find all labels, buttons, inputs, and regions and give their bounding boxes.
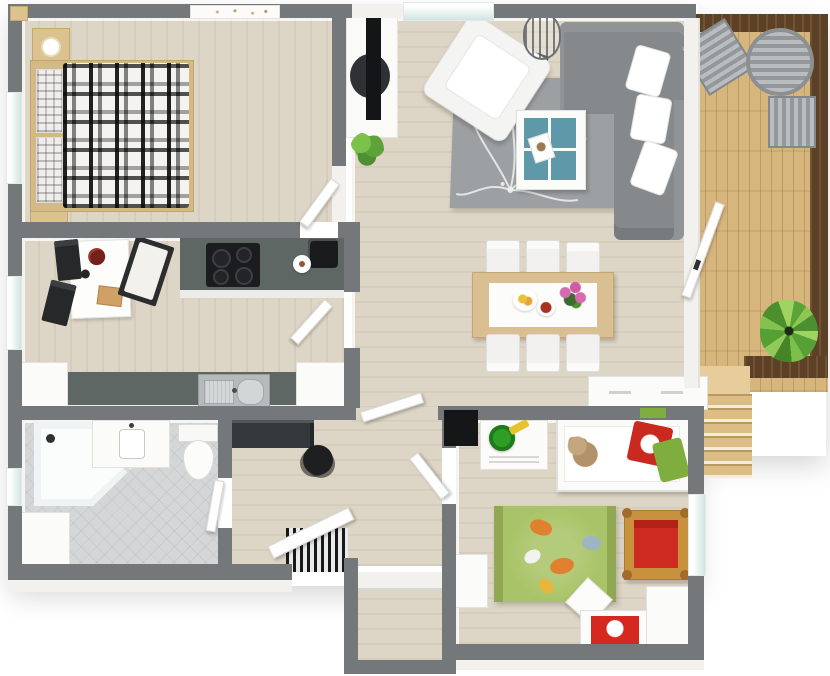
toy-shovel (508, 419, 529, 435)
dining-table (472, 272, 614, 338)
chalkboard-panel (444, 410, 478, 446)
living-window (403, 2, 494, 21)
stair-step (696, 422, 752, 436)
kids-dresser (480, 420, 548, 470)
bathroom-cabinet (16, 512, 70, 568)
dining-chair (526, 334, 560, 372)
deck-chair (768, 96, 816, 148)
wall-closet-right (442, 558, 456, 674)
sink-bowl (237, 379, 264, 405)
building-base-kids (456, 660, 704, 670)
crib-mattress (634, 520, 678, 568)
double-bed (30, 60, 194, 212)
food-bowl (537, 299, 555, 316)
plate (293, 255, 311, 273)
glass-wall-deck (684, 18, 700, 388)
rug-animal-bird (581, 534, 602, 552)
vanity (92, 420, 170, 468)
burner (235, 267, 253, 285)
kitchen-sink (198, 374, 270, 410)
sink-basin (204, 380, 234, 404)
wall-bottom-left (8, 564, 292, 580)
deck-plant-fern (760, 300, 818, 362)
fruit-plate (513, 289, 537, 311)
wall-kids-bottom (456, 644, 704, 660)
kitchen-window (6, 276, 22, 350)
deck-table (746, 28, 814, 96)
hall-console (232, 420, 314, 448)
wall-kitchen-right-a (344, 222, 360, 292)
closet-shelf (358, 572, 442, 590)
stair-step (696, 464, 752, 478)
shower-head (46, 434, 55, 443)
wall-bathroom-right-b (218, 528, 232, 566)
wall-top-bedroom (8, 4, 352, 18)
wall-kids-right-b (688, 574, 704, 660)
crib-post (622, 570, 632, 580)
cooktop-counter-edge (180, 290, 344, 298)
floor-plan-canvas (0, 0, 830, 676)
kids-window (688, 494, 706, 576)
rug-animal-fox (528, 516, 554, 539)
stair-step (696, 450, 752, 464)
coffee-machine (308, 239, 338, 268)
wall-sconce (10, 6, 28, 21)
tv-screen (366, 16, 381, 120)
wall-art-dried-plants (190, 5, 280, 19)
crib-post (622, 508, 632, 518)
hall-stool (303, 445, 333, 475)
sideboard-handle (661, 391, 683, 394)
burner (213, 269, 229, 285)
wall-bedroom-right (332, 18, 346, 166)
kitchen-chair (54, 239, 82, 281)
dining-chair (486, 334, 520, 372)
coffee-cup (81, 269, 90, 278)
cooktop (206, 243, 260, 287)
wall-bedroom-bottom-a (8, 222, 300, 238)
kids-bed (556, 418, 690, 492)
bathroom-window (6, 468, 22, 506)
burner (212, 249, 231, 268)
burner (236, 247, 252, 263)
red-play-mat (591, 616, 639, 644)
plate-food (299, 261, 305, 267)
wall-closet-bottom (344, 660, 456, 674)
wall-middle-horizontal (8, 406, 356, 420)
stair-step (696, 408, 752, 422)
wall-bathroom-right-a (218, 420, 232, 478)
stair-step (696, 436, 752, 450)
bed-pillow-top (36, 69, 63, 133)
teddy-bear (566, 434, 598, 468)
wall-kitchen-right-b (344, 348, 360, 408)
dresser-vents (489, 453, 539, 463)
plaid-blanket (63, 63, 189, 208)
plant-pot-living (350, 132, 384, 166)
crib (624, 510, 690, 580)
wall-kids-right-a (688, 406, 704, 494)
armchair-cushion (443, 33, 532, 122)
wall-top-sill (352, 4, 403, 18)
wall-bedroom-right-closet (332, 166, 346, 222)
deck-door-handle (693, 259, 701, 270)
wall-shelf-green (640, 408, 666, 418)
rug-animal-fox (548, 555, 576, 578)
bedroom-window (6, 92, 22, 184)
rug-animal-chick (536, 576, 556, 595)
wall-top-living (492, 4, 696, 18)
vanity-sink (119, 429, 145, 459)
sideboard-handle (609, 391, 631, 394)
wall-kids-left-b (442, 504, 456, 560)
dining-chair (566, 334, 600, 372)
floor-lamp-cage (523, 12, 561, 60)
coffee-table (516, 110, 586, 190)
building-base-left (8, 580, 292, 592)
rug-animal-bunny (522, 547, 543, 567)
coffee-pot (88, 248, 106, 266)
vanity-faucet (129, 423, 134, 428)
faucet (232, 388, 237, 393)
bed-pillow-bottom (36, 137, 63, 203)
table-lamp (43, 39, 59, 55)
flower-vase (555, 279, 589, 313)
wall-closet-left (344, 558, 358, 674)
